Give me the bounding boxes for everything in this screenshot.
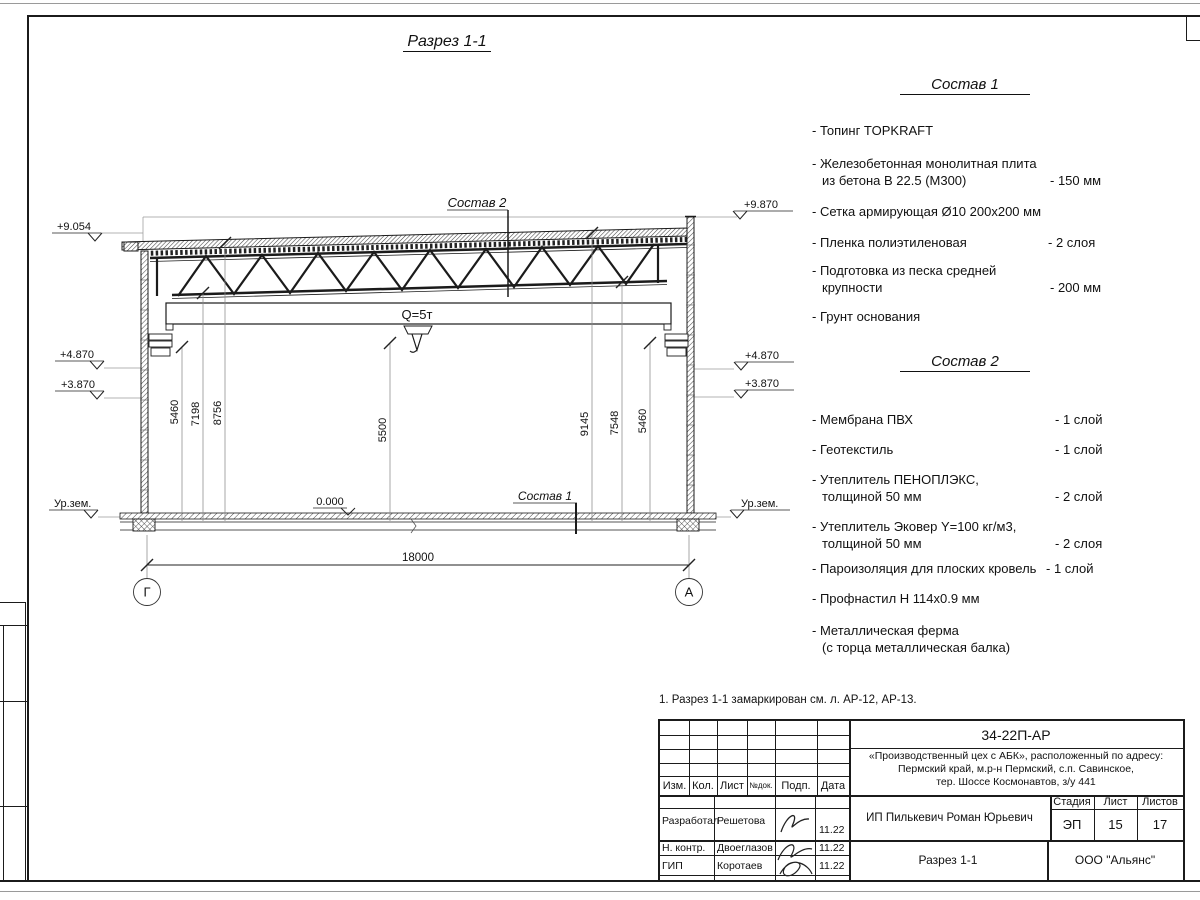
row-role: ГИП [662, 860, 683, 872]
sheet-title: Разрез 1-1 [849, 840, 1047, 880]
list-item: - Грунт основания [812, 309, 920, 324]
list-item: - Подготовка из песка средней [812, 263, 996, 278]
list-item: из бетона В 22.5 (М300) [822, 173, 966, 188]
axis-letter-right: А [685, 585, 694, 600]
elev-4870-right: +4.870 [745, 350, 779, 362]
list-item: - Топинг TOPKRAFT [812, 123, 933, 138]
elev-3870-left: +3.870 [61, 379, 95, 391]
elev-4870-left: +4.870 [60, 349, 94, 361]
dim-8756: 8756 [212, 401, 224, 425]
title-block: Изм. Кол. Лист №док. Подп. Дата Разработ… [658, 719, 1185, 882]
span-dimension: 18000 Г А [134, 535, 703, 606]
item-qty: - 1 слой [1046, 561, 1094, 576]
sostav1-leader-label: Состав 1 [518, 489, 572, 503]
col-header-data: Дата [817, 776, 849, 795]
item-qty: - 1 слой [1055, 412, 1103, 427]
list-item: - Утеплитель ПЕНОПЛЭКС, [812, 472, 979, 487]
item-qty: - 2 слоя [1055, 536, 1102, 551]
project-address: «Производственный цех с АБК», расположен… [849, 750, 1183, 789]
elev-ground-right: Ур.зем. [741, 498, 778, 510]
dim-18000: 18000 [402, 552, 434, 564]
footing-left [133, 519, 155, 531]
sheets-value: 17 [1137, 809, 1183, 840]
row-role: Н. контр. [662, 842, 705, 854]
elev-9054: +9.054 [57, 221, 91, 233]
drawing-note: 1. Разрез 1-1 замаркирован см. л. АР-12,… [659, 694, 917, 706]
row-name: Двоеглазов [717, 842, 773, 854]
sostav2-leader-label: Состав 2 [448, 195, 507, 210]
row-date: 11.22 [819, 824, 845, 836]
item-qty: - 1 слой [1055, 442, 1103, 457]
floor-slab [120, 513, 716, 533]
list-item: - Пленка полиэтиленовая [812, 235, 967, 250]
doc-number: 34-22П-АР [849, 721, 1183, 748]
item-qty: - 200 мм [1050, 280, 1101, 295]
list-item: - Пароизоляция для плоских кровель [812, 561, 1036, 576]
list-item: - Сетка армирующая Ø10 200х200 мм [812, 204, 1041, 219]
eave-block [124, 242, 138, 251]
list-item: крупности [822, 280, 882, 295]
wall-left [141, 251, 148, 513]
signature-checker [772, 840, 818, 882]
sheet-header: Лист [1094, 795, 1137, 809]
list-item: - Профнастил Н 114х0.9 мм [812, 591, 980, 606]
list-item: толщиной 50 мм [822, 536, 922, 551]
dim-7548: 7548 [609, 411, 621, 435]
list-item: - Утеплитель Эковер Y=100 кг/м3, [812, 519, 1016, 534]
dim-5460-left: 5460 [169, 400, 181, 424]
client-name: ИП Пилькевич Роман Юрьевич [849, 795, 1050, 840]
signature-developer [775, 806, 815, 840]
zero-level-label: 0.000 [316, 496, 344, 508]
row-role: Разработал [662, 815, 719, 827]
crane-hook [404, 326, 432, 352]
footing-right [677, 519, 699, 531]
row-date: 11.22 [819, 860, 845, 872]
elevation-marks-right: +9.870 +4.870 +3.870 Ур.зем. [730, 199, 794, 518]
address-line: тер. Шоссе Космонавтов, з/у 441 [849, 776, 1183, 789]
axis-letter-left: Г [143, 585, 150, 600]
sostav1-heading: Состав 1 [900, 76, 1030, 95]
row-name: Решетова [717, 815, 765, 827]
drawing-sheet: { "page": { "title": "Разрез 1-1", "note… [0, 0, 1200, 900]
sostav2-heading: Состав 2 [900, 353, 1030, 372]
stage-header: Стадия [1050, 795, 1094, 809]
sheets-header: Листов [1137, 795, 1183, 809]
list-item: толщиной 50 мм [822, 489, 922, 504]
col-header-list: Лист [717, 776, 747, 795]
elev-ground-left: Ур.зем. [54, 498, 91, 510]
dim-5460-right: 5460 [637, 409, 649, 433]
item-qty: - 2 слой [1055, 489, 1103, 504]
row-name: Коротаев [717, 860, 762, 872]
col-header-podp: Подп. [775, 776, 817, 795]
col-header-kol: Кол. [689, 776, 717, 795]
elev-3870-right: +3.870 [745, 378, 779, 390]
address-line: Пермский край, м.р-н Пермский, с.п. Сави… [849, 763, 1183, 776]
list-item: - Железобетонная монолитная плита [812, 156, 1037, 171]
truss-bottom-chord [172, 281, 667, 295]
stage-value: ЭП [1050, 809, 1094, 840]
sheet-value: 15 [1094, 809, 1137, 840]
break-symbol [411, 519, 416, 533]
row-date: 11.22 [819, 842, 845, 854]
col-header-izm: Изм. [660, 776, 689, 795]
elevation-marks-left: +9.054 +4.870 +3.870 Ур.зем. [49, 221, 104, 518]
list-item: - Мембрана ПВХ [812, 412, 913, 427]
list-item: (с торца металлическая балка) [822, 640, 1010, 655]
item-qty: - 150 мм [1050, 173, 1101, 188]
item-qty: - 2 слоя [1048, 235, 1095, 250]
company-name: ООО "Альянс" [1047, 840, 1183, 880]
list-item: - Геотекстиль [812, 442, 893, 457]
crane-capacity-label: Q=5т [402, 307, 433, 322]
dim-7198: 7198 [190, 402, 202, 426]
vertical-dimensions: 5460 7198 8756 5500 9145 7548 5460 [169, 227, 656, 521]
walls [140, 217, 696, 514]
address-line: «Производственный цех с АБК», расположен… [849, 750, 1183, 763]
list-item: - Металлическая ферма [812, 623, 959, 638]
elev-9870: +9.870 [744, 199, 778, 211]
col-header-ndok: №док. [747, 776, 775, 795]
dim-5500: 5500 [377, 418, 389, 442]
dim-9145: 9145 [579, 412, 591, 436]
